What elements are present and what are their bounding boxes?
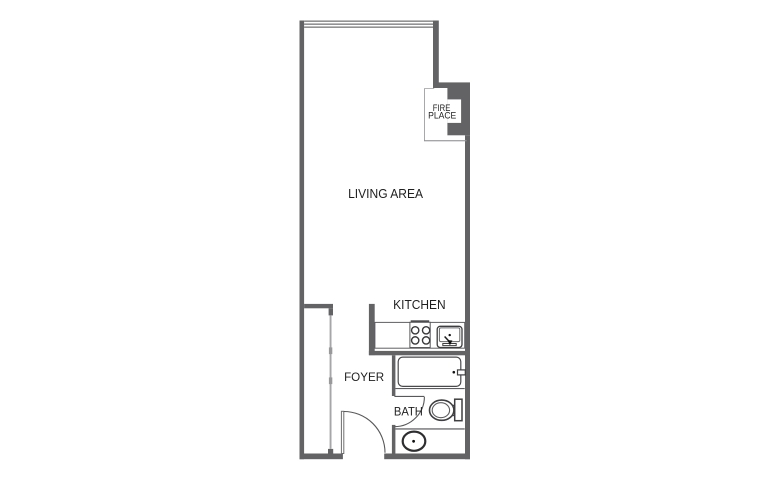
svg-text:KITCHEN: KITCHEN: [393, 297, 446, 312]
svg-text:PLACE: PLACE: [428, 110, 456, 120]
svg-text:FOYER: FOYER: [344, 370, 384, 384]
svg-text:LIVING AREA: LIVING AREA: [348, 187, 424, 201]
svg-text:BATH: BATH: [394, 404, 423, 418]
